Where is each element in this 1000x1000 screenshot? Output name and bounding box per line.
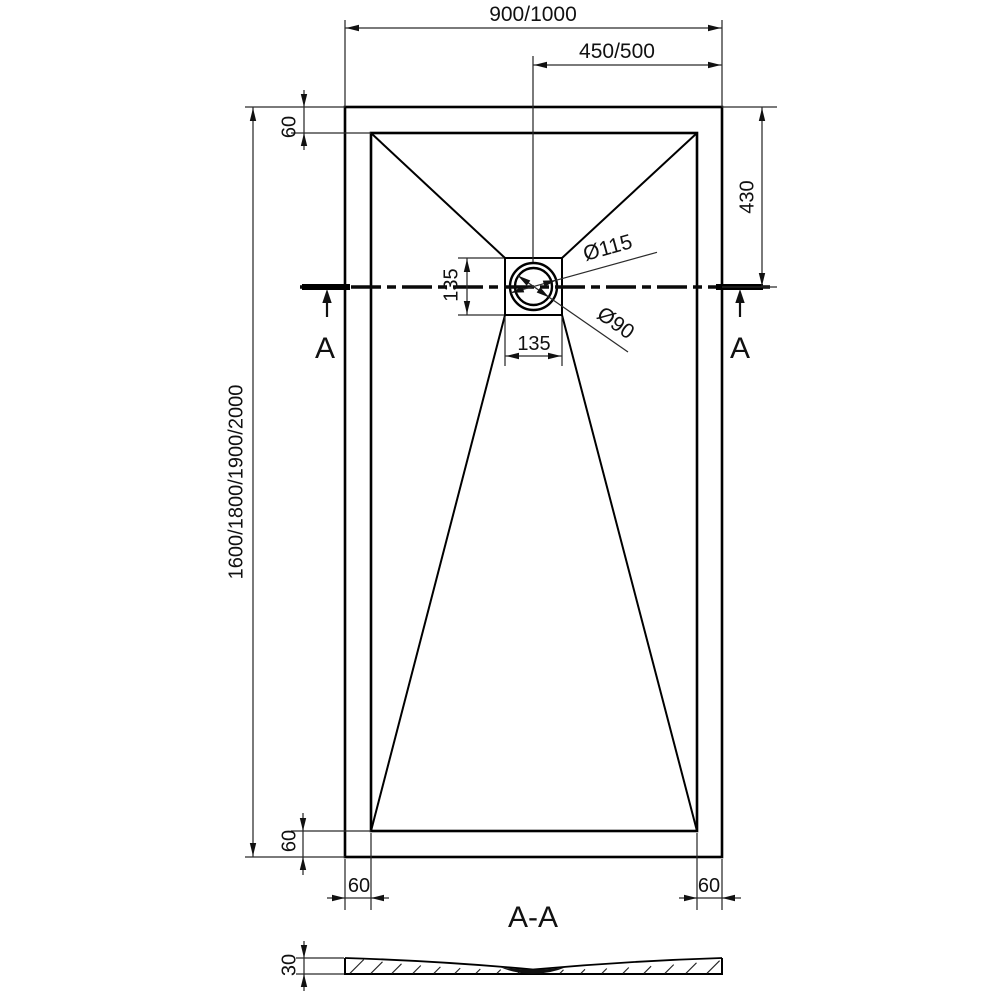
bottom-rim-dimension-right: 60: [679, 833, 741, 910]
bottom-rim-left-label: 60: [348, 875, 370, 897]
section-arrow-right: [735, 289, 744, 303]
drain-inner-diameter-label: Ø90: [593, 302, 639, 344]
thickness-label: 30: [278, 954, 300, 976]
half-width-dimension: 450/500: [533, 40, 722, 262]
section-view: [345, 958, 722, 974]
section-letter-right: A: [730, 332, 750, 365]
section-arrow-left: [322, 289, 331, 303]
drain-offset-dimension: 430: [722, 107, 777, 287]
section-title: A-A: [508, 901, 558, 934]
tray-inner-edge: [371, 133, 697, 831]
drain-size-dimension-horizontal: 135: [505, 317, 562, 366]
top-rim-dimension: 60: [278, 90, 371, 150]
overall-width-label: 900/1000: [489, 3, 577, 26]
half-width-label: 450/500: [579, 40, 655, 63]
overall-length-dimension: 1600/1800/1900/2000: [225, 107, 345, 857]
bottom-rim-dimension-vertical: 60: [278, 813, 371, 875]
section-marker-right: A: [730, 289, 750, 365]
section-top-surface: [345, 958, 722, 970]
overall-length-label: 1600/1800/1900/2000: [225, 385, 247, 580]
drain-height-label: 135: [440, 268, 462, 301]
slope-lines: [371, 133, 697, 831]
drain-offset-label: 430: [736, 180, 758, 213]
drain-width-label: 135: [517, 333, 550, 355]
top-rim-label: 60: [278, 116, 300, 138]
shower-tray-technical-drawing: A A 900/1000 450/500 1600/1800/1900/2000: [0, 0, 1000, 1000]
section-letter-left: A: [315, 332, 335, 365]
section-marker-left: A: [315, 289, 335, 365]
bottom-rim-dimension-left: 60: [327, 833, 389, 910]
drawing-canvas: A A 900/1000 450/500 1600/1800/1900/2000: [0, 0, 1000, 1000]
bottom-rim-label: 60: [278, 830, 300, 852]
thickness-dimension: 30: [278, 941, 344, 991]
bottom-rim-right-label: 60: [698, 875, 720, 897]
